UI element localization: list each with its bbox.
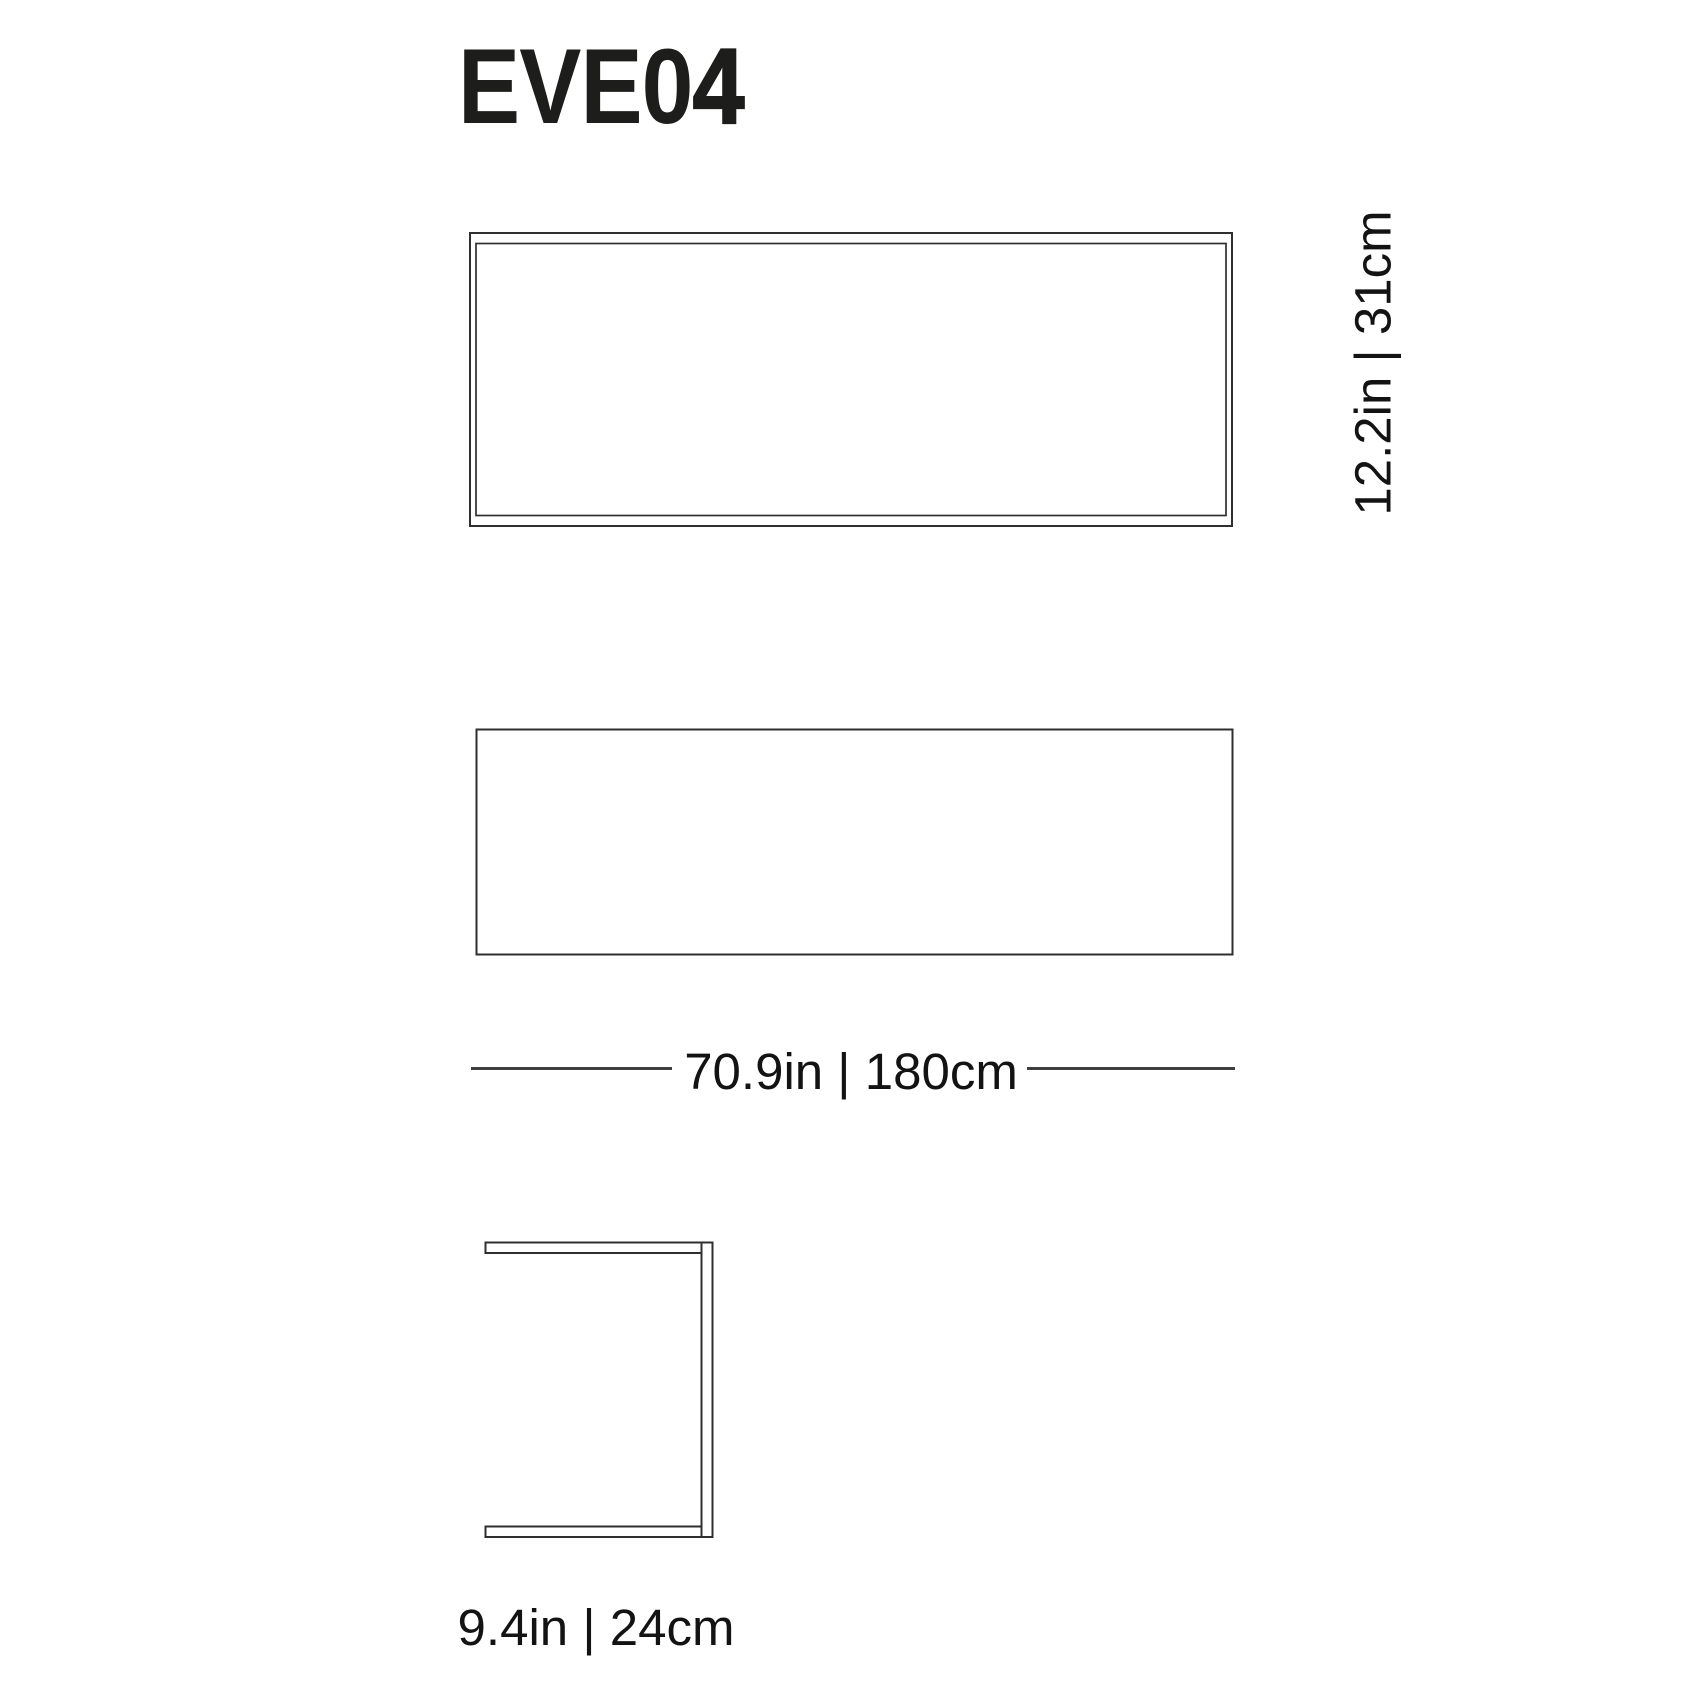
depth-dimension-label: 9.4in | 24cm [458,1602,735,1653]
side-view-drawing [484,1241,715,1539]
height-dimension-label: 12.2in | 31cm [1348,210,1399,515]
front-view-drawing [469,232,1233,527]
product-code-title: EVE04 [458,33,743,140]
side-view-bottom-slab [486,1527,713,1538]
side-view-top-slab [486,1243,713,1254]
side-view-back-panel [702,1243,713,1538]
top-view-outline [477,730,1233,955]
front-view-outer-outline [470,233,1232,526]
spec-sheet: EVE04 12.2in | 31cm 70.9in | 180cm 9.4in… [0,0,1700,1700]
width-dimension-line-right [1027,1067,1235,1070]
top-view-drawing [475,728,1235,957]
width-dimension-line-left [471,1067,672,1070]
product-code-suffix: 4 [693,26,744,146]
width-dimension-label: 70.9in | 180cm [684,1046,1018,1097]
product-code-prefix: EVE0 [458,26,693,146]
